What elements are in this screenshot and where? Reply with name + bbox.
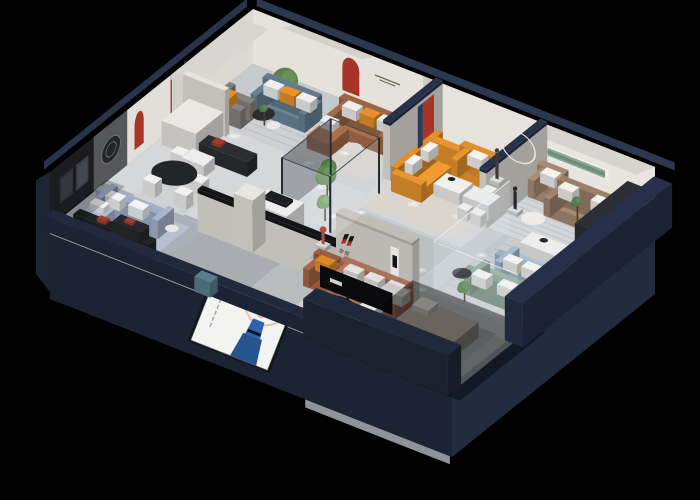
spotlight-core — [343, 152, 348, 154]
beige-armchair-arm-l-sw — [528, 179, 534, 199]
mascot-figure-head — [320, 226, 327, 233]
glass-display-case-post-0 — [330, 118, 332, 175]
hall-pillar-sw — [234, 193, 253, 253]
wall-se-high-sw — [505, 296, 523, 347]
right-statue-body — [514, 191, 517, 210]
rust-armchair-arm-l-sw — [303, 268, 309, 288]
spotlight-core — [411, 203, 416, 205]
right-statue-head — [513, 186, 517, 190]
teal-sofa-arm-r-sw — [299, 113, 305, 133]
glass-display-case-post-1 — [378, 137, 380, 194]
art-statue-body — [495, 152, 498, 179]
spotlight-core — [232, 135, 237, 137]
floorplan-3d-svg: HUAYUE华悦 — [0, 0, 700, 500]
west-sofa-arm-r-sw — [152, 219, 158, 239]
showroom-render: HUAYUE华悦 — [0, 0, 700, 500]
lounge-table-plant-leaf — [263, 105, 267, 109]
taupe-sofa-arm-l-sw — [544, 197, 550, 217]
divider-a-blue-stripe — [418, 103, 423, 149]
art-statue-head — [495, 148, 499, 152]
mascot-figure-body — [322, 232, 325, 245]
hall-pillar-se — [253, 191, 266, 253]
office-partition-se — [225, 88, 229, 137]
sofa-plant-leaf — [575, 198, 581, 204]
divider-wall-a-sw — [383, 121, 390, 181]
glass-display-case-post-2 — [329, 176, 331, 233]
